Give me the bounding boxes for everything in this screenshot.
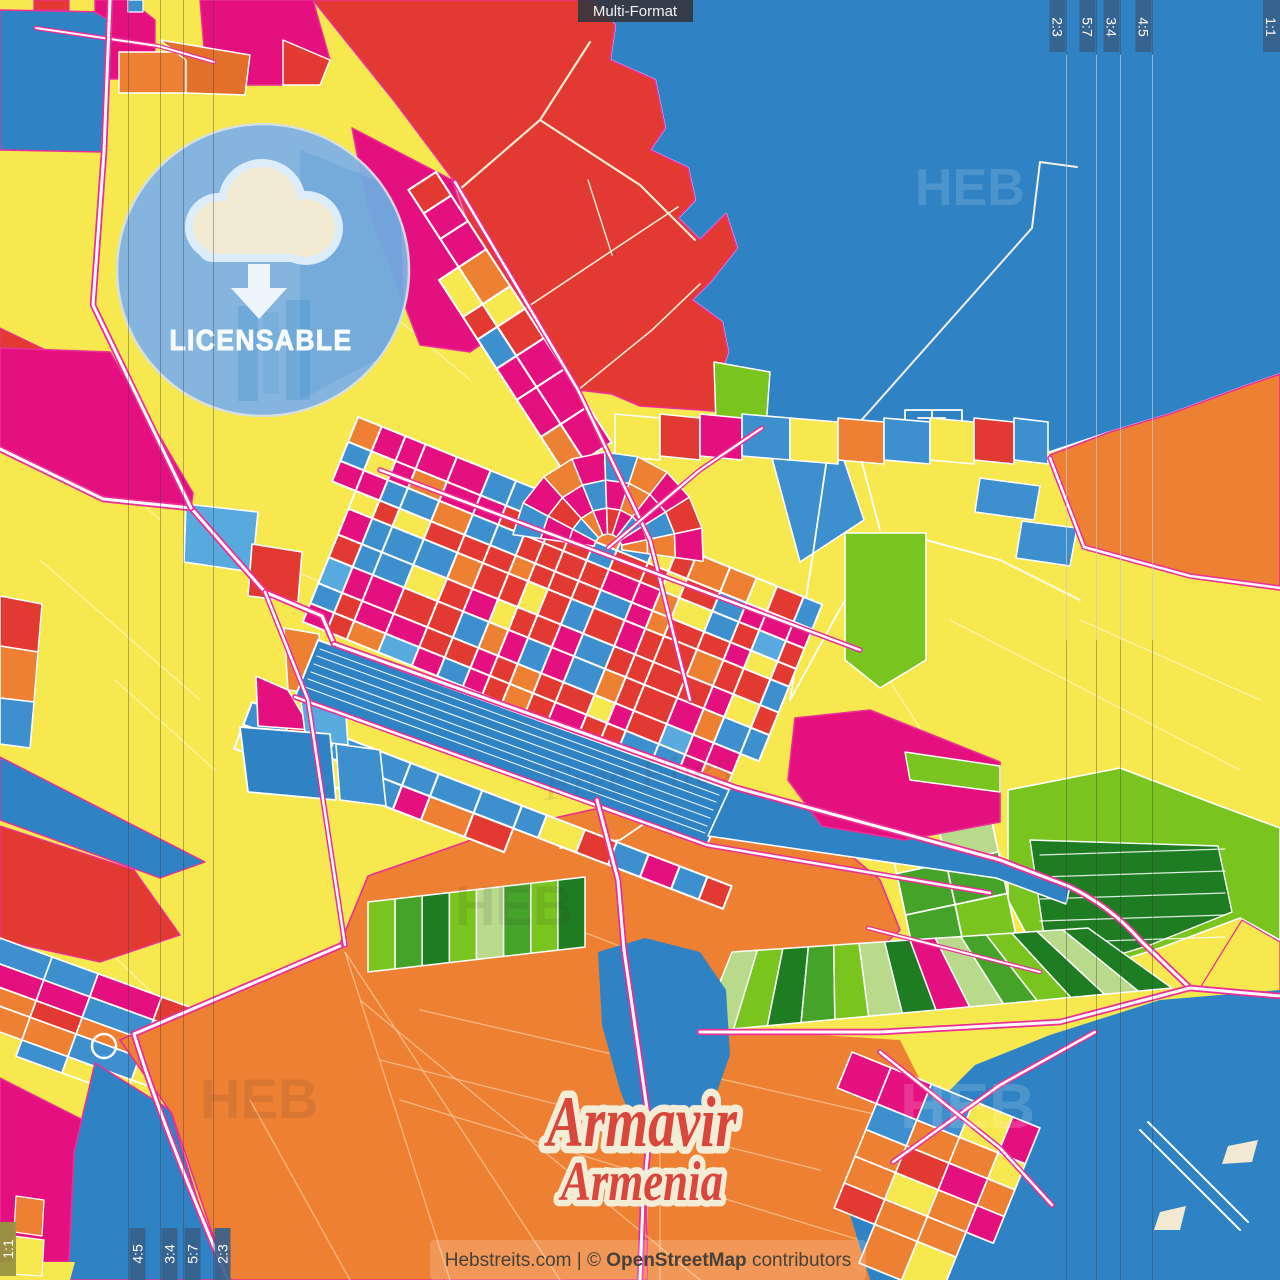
svg-text:1:1: 1:1 [1263, 17, 1279, 37]
svg-text:HEB: HEB [455, 874, 573, 937]
svg-text:HEB: HEB [915, 159, 1025, 217]
svg-text:LICENSABLE: LICENSABLE [170, 325, 353, 357]
svg-text:Hebstreits.com | © OpenStreetM: Hebstreits.com | © OpenStreetMap contrib… [445, 1250, 851, 1271]
svg-text:5:7: 5:7 [1080, 17, 1096, 37]
svg-text:2:3: 2:3 [1050, 17, 1066, 37]
svg-text:Armenia: Armenia [559, 1151, 723, 1213]
svg-text:Armavir: Armavir [544, 1082, 738, 1162]
svg-text:3:4: 3:4 [1104, 17, 1120, 37]
svg-text:3:4: 3:4 [162, 1244, 178, 1264]
svg-text:HEB: HEB [200, 1067, 318, 1130]
svg-text:5:7: 5:7 [185, 1244, 201, 1264]
svg-text:2:3: 2:3 [215, 1244, 231, 1264]
svg-text:4:5: 4:5 [1136, 17, 1152, 37]
svg-text:HEB: HEB [900, 1070, 1035, 1142]
svg-text:Multi-Format: Multi-Format [593, 3, 678, 20]
svg-text:4:5: 4:5 [130, 1244, 146, 1264]
svg-text:1:1: 1:1 [0, 1239, 16, 1259]
